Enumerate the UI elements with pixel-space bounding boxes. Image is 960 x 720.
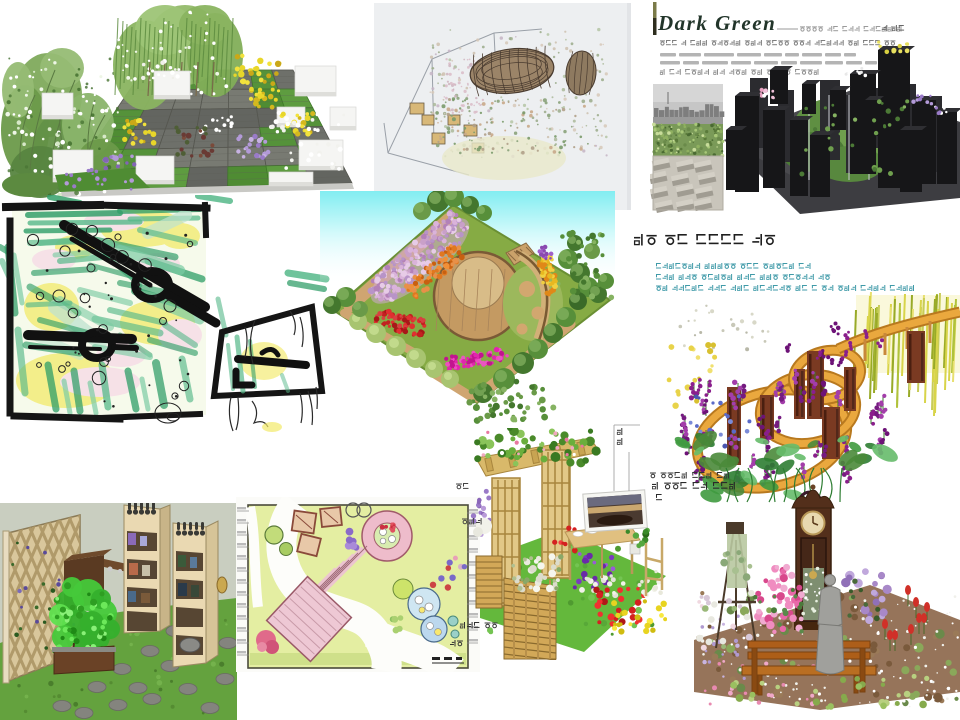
svg-text:Dark Green: Dark Green: [657, 11, 776, 35]
